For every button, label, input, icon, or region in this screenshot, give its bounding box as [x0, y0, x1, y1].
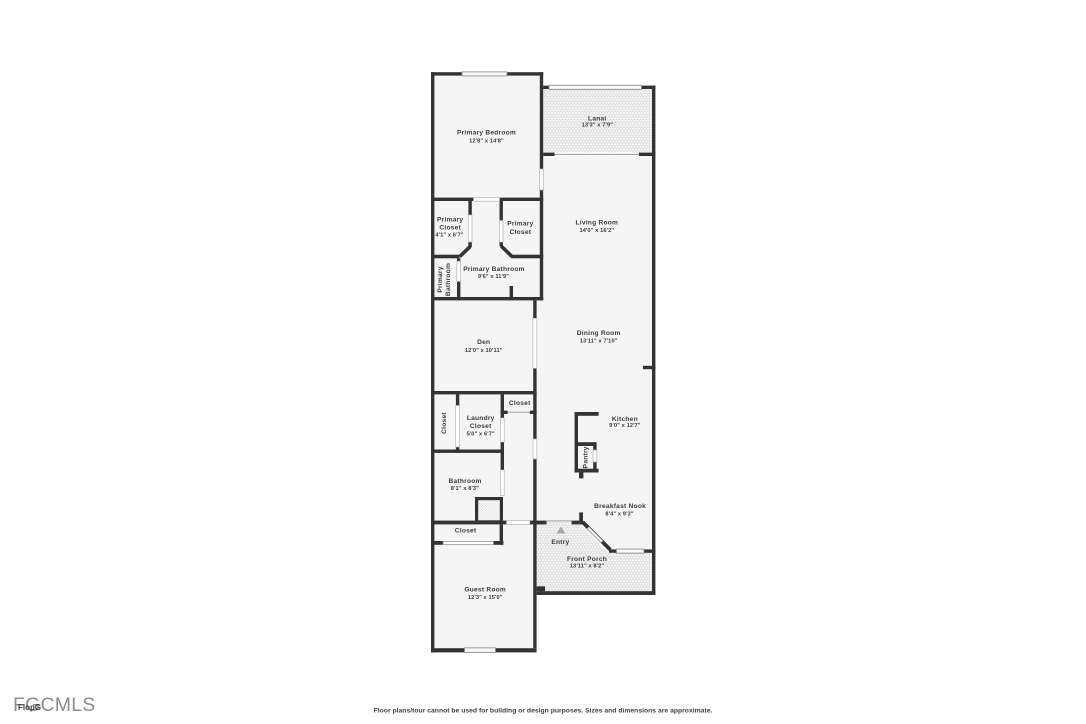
svg-text:Bathroom: Bathroom — [445, 263, 452, 296]
svg-text:Den: Den — [477, 339, 490, 346]
svg-text:Primary: Primary — [437, 266, 444, 292]
svg-text:14'0" x 16'2": 14'0" x 16'2" — [579, 228, 614, 234]
svg-text:Bathroom: Bathroom — [449, 478, 482, 485]
svg-text:Closet: Closet — [510, 229, 532, 236]
svg-text:9'6" x 11'9": 9'6" x 11'9" — [478, 274, 509, 280]
svg-text:12'0" x 10'11": 12'0" x 10'11" — [465, 348, 503, 354]
svg-text:Primary Bedroom: Primary Bedroom — [457, 130, 516, 137]
svg-text:FlopG: FlopG — [18, 703, 41, 712]
svg-text:Primary: Primary — [507, 221, 533, 228]
svg-text:Floor plans/tour cannot be use: Floor plans/tour cannot be used for buil… — [374, 707, 713, 714]
svg-text:5'0" x 6'7": 5'0" x 6'7" — [467, 431, 495, 437]
svg-text:8'4" x 9'3": 8'4" x 9'3" — [605, 512, 633, 518]
svg-text:Pantry: Pantry — [582, 446, 589, 468]
svg-text:Closet: Closet — [441, 412, 448, 434]
svg-text:8'1" x 8'3": 8'1" x 8'3" — [451, 486, 479, 492]
svg-text:4'1" x 6'7": 4'1" x 6'7" — [435, 233, 463, 239]
svg-text:9'0" x 12'7": 9'0" x 12'7" — [609, 423, 641, 429]
svg-text:13'3" x 7'9": 13'3" x 7'9" — [582, 123, 614, 129]
svg-text:13'11" x 8'2": 13'11" x 8'2" — [570, 563, 605, 569]
svg-text:Breakfast Nook: Breakfast Nook — [594, 503, 646, 510]
svg-text:Closet: Closet — [509, 400, 531, 407]
svg-text:Guest Room: Guest Room — [464, 587, 506, 594]
svg-text:Closet: Closet — [470, 423, 492, 430]
svg-text:Primary: Primary — [437, 217, 463, 224]
svg-text:Kitchen: Kitchen — [612, 416, 638, 423]
svg-text:Lanai: Lanai — [588, 115, 606, 122]
svg-text:13'11" x 7'10": 13'11" x 7'10" — [580, 339, 618, 345]
svg-text:Laundry: Laundry — [467, 415, 495, 422]
svg-text:Front Porch: Front Porch — [567, 556, 607, 563]
svg-text:Entry: Entry — [551, 539, 569, 546]
svg-text:Dining Room: Dining Room — [577, 330, 621, 337]
svg-text:Primary Bathroom: Primary Bathroom — [463, 266, 525, 273]
svg-text:12'3" x 15'0": 12'3" x 15'0" — [468, 595, 503, 601]
svg-text:Closet: Closet — [455, 527, 477, 534]
svg-text:Closet: Closet — [439, 225, 461, 232]
svg-text:Living Room: Living Room — [575, 220, 618, 227]
svg-text:12'8" x 14'8": 12'8" x 14'8" — [469, 139, 504, 145]
